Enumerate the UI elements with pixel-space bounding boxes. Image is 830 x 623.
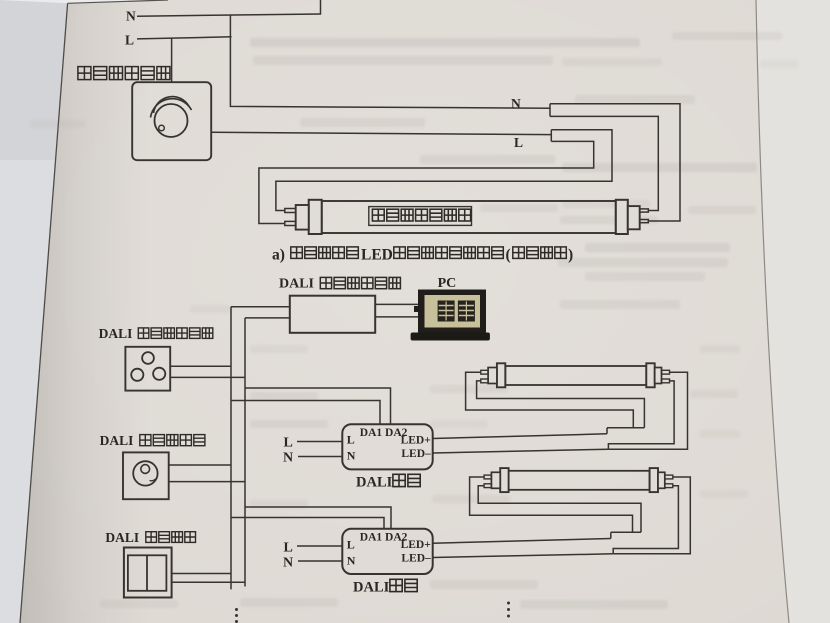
svg-text:LED+: LED+	[401, 539, 431, 551]
svg-text:DALI: DALI	[356, 475, 393, 491]
svg-text:N: N	[347, 449, 356, 463]
svg-text:): )	[568, 247, 573, 264]
svg-text:DALI: DALI	[100, 433, 134, 448]
svg-text:PC: PC	[438, 276, 457, 291]
svg-text:N: N	[283, 556, 293, 571]
svg-text:LED: LED	[361, 247, 393, 264]
svg-text:L: L	[347, 433, 355, 447]
svg-text:LED–: LED–	[401, 553, 431, 565]
svg-text:LED+: LED+	[401, 435, 431, 447]
svg-text:DALI: DALI	[105, 530, 139, 545]
svg-text:DALI: DALI	[279, 277, 314, 292]
svg-text:N: N	[283, 451, 293, 466]
svg-text:DALI: DALI	[99, 326, 133, 341]
svg-text:L: L	[514, 135, 523, 150]
svg-text:L: L	[125, 33, 134, 48]
svg-text:(: (	[506, 247, 511, 264]
svg-text:N: N	[511, 96, 521, 111]
svg-text:L: L	[284, 541, 293, 556]
svg-text:N: N	[347, 553, 356, 567]
svg-text:LED–: LED–	[401, 448, 431, 460]
svg-text:a): a)	[272, 247, 285, 264]
svg-text:N: N	[126, 9, 136, 24]
svg-text:DALI: DALI	[353, 580, 390, 596]
svg-text:L: L	[347, 537, 355, 551]
svg-text:L: L	[284, 436, 293, 451]
